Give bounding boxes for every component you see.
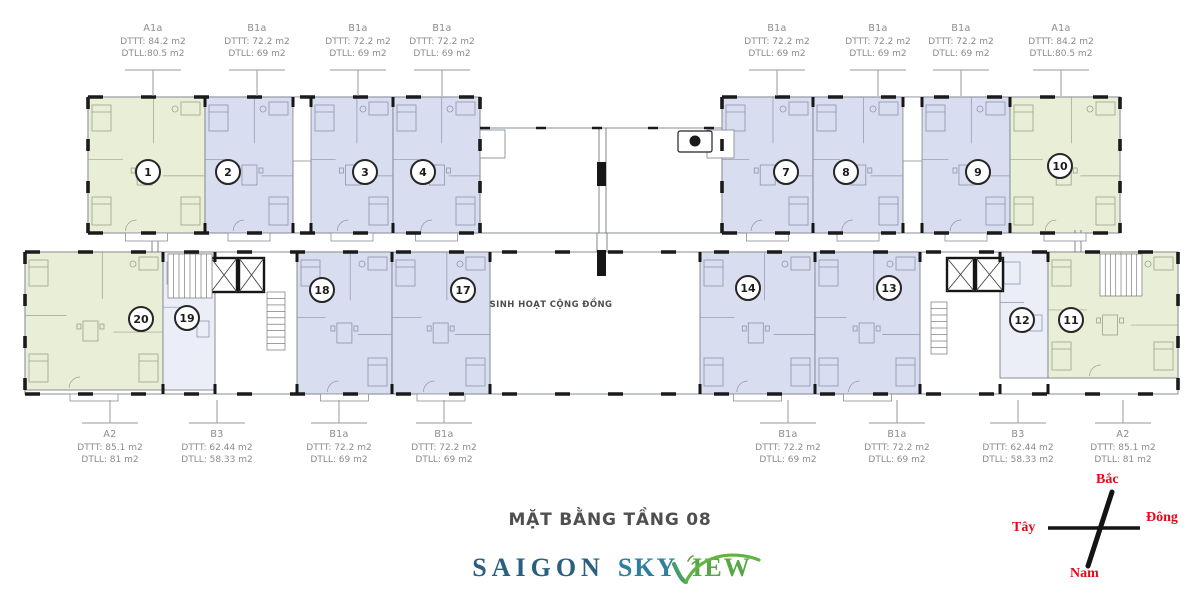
logo-v-swoosh-icon — [673, 554, 699, 586]
floor-plan-page: 1234789102019181714131211 A1aDTTT: 84.2 … — [0, 0, 1200, 597]
compass-west-label: Tây — [1012, 520, 1035, 536]
compass-cross — [0, 0, 1200, 597]
compass-north-label: Bắc — [1096, 472, 1119, 488]
compass-south-label: Nam — [1070, 566, 1099, 582]
compass-east-label: Đông — [1146, 510, 1178, 526]
